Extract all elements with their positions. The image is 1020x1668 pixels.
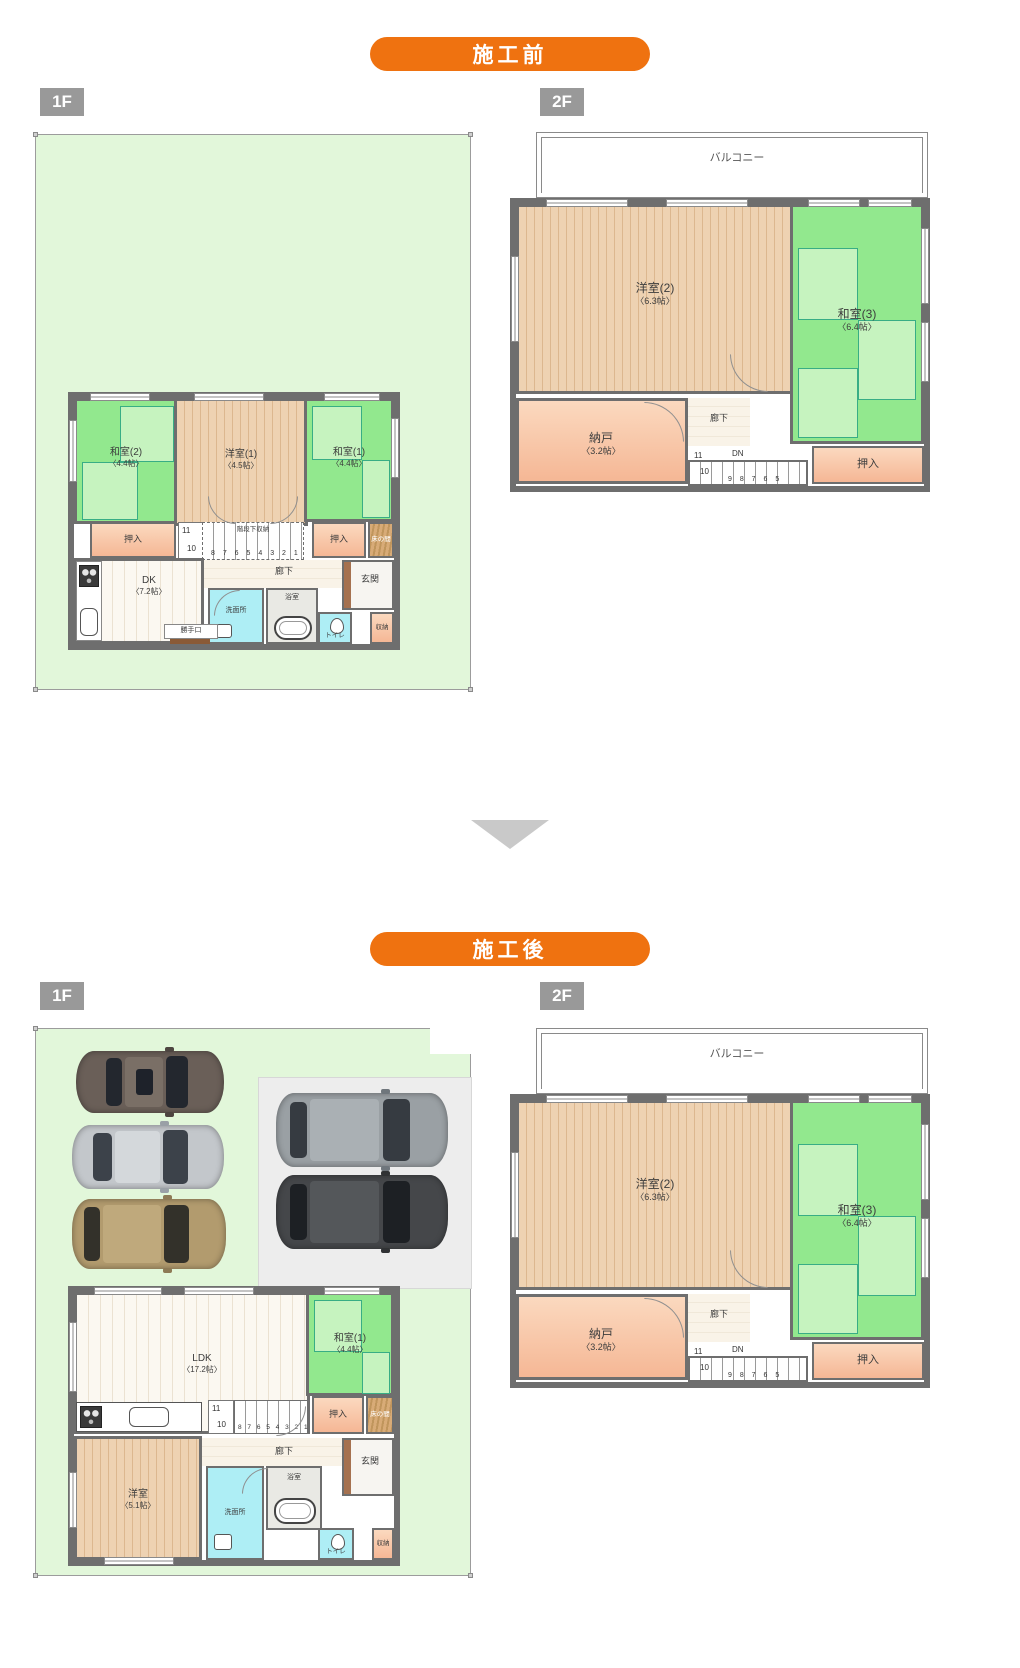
room-label: 玄関 — [346, 1452, 394, 1472]
window-symbol — [69, 420, 77, 482]
closet-label: 押入 — [312, 522, 366, 558]
room-label: 洋室(2) 〈6.3帖〉 — [612, 1170, 698, 1210]
window-symbol — [666, 1095, 748, 1103]
stair-numbers: 8 7 6 5 4 3 2 1 — [211, 550, 301, 557]
room-label: 和室(1) 〈4.4帖〉 — [318, 1326, 382, 1362]
transition-arrow-down — [471, 820, 549, 849]
stair-number: 11 — [212, 1405, 220, 1413]
room-label: トイレ — [318, 1546, 354, 1558]
window-symbol — [921, 1218, 929, 1278]
lot-corner-marker — [33, 1026, 38, 1031]
room-label: DK 〈7.2帖〉 — [114, 570, 184, 602]
window-symbol — [921, 228, 929, 304]
room-label: 洋室(1) 〈4.5帖〉 — [201, 442, 281, 478]
corridor-label: 廊下 — [264, 562, 304, 582]
stair-number: 11 — [694, 452, 702, 460]
stair-landing: 11 10 — [208, 1400, 234, 1434]
corridor-label: 廊下 — [264, 1442, 304, 1462]
after-section-badge: 施工後 — [370, 932, 650, 966]
stove-icon — [79, 565, 99, 587]
room-label: 浴室 — [266, 592, 318, 604]
car-suv-gray-top-icon — [276, 1093, 448, 1167]
bathtub-icon — [274, 616, 312, 640]
lot-corner-marker — [33, 687, 38, 692]
room-label: 和室(2) 〈4.4帖〉 — [86, 440, 166, 476]
room-label: 洋室 〈5.1帖〉 — [98, 1482, 178, 1518]
floor-1f-badge-after: 1F — [40, 982, 84, 1010]
tokonoma-label: 床の間 — [364, 1396, 396, 1434]
room-label: LDK 〈17.2帖〉 — [162, 1346, 242, 1382]
window-symbol — [104, 1557, 174, 1565]
room-label: 浴室 — [266, 1472, 322, 1484]
floor-2f-body: 洋室(2) 〈6.3帖〉 和室(3) 〈6.4帖〉 納戸 〈3.2帖〉 廊下 D… — [510, 1094, 930, 1388]
katteguchi-label: 勝手口 — [164, 624, 218, 639]
window-symbol — [511, 1152, 519, 1238]
stair-landing: 11 10 — [178, 522, 204, 560]
closet-label: 押入 — [812, 1342, 924, 1380]
stair-number: 10 — [700, 1364, 709, 1372]
washbasin-icon — [216, 624, 232, 638]
bathtub-icon — [274, 1498, 316, 1524]
window-symbol — [324, 1287, 380, 1295]
floorplan-1f-before: 和室(2) 〈4.4帖〉 洋室(1) 〈4.5帖〉 和室(1) 〈4.4帖〉 押… — [68, 392, 400, 650]
closet-label: 押入 — [312, 1396, 364, 1434]
stairs-under-closet: 階段下収納 8 7 6 5 4 3 2 1 — [202, 522, 304, 560]
room-label: 洗面所 — [206, 1506, 264, 1520]
room-label: 玄関 — [346, 570, 394, 590]
window-symbol — [808, 1095, 860, 1103]
room-label: 納戸 〈3.2帖〉 — [556, 424, 646, 464]
window-symbol — [391, 418, 399, 478]
window-symbol — [511, 256, 519, 342]
window-symbol — [69, 1322, 77, 1392]
floor-2f-badge-after: 2F — [540, 982, 584, 1010]
stair-numbers: 9 8 7 6 5 — [728, 476, 782, 483]
window-symbol — [921, 322, 929, 382]
balcony-label: バルコニー — [657, 151, 817, 167]
corridor-label: 廊下 — [696, 410, 742, 428]
lot-corner-marker — [468, 1573, 473, 1578]
lot-corner-marker — [468, 687, 473, 692]
floorplan-2f-after: バルコニー 洋室(2) 〈6.3帖〉 和室(3) 〈6.4帖〉 納戸 〈3.2帖… — [510, 1026, 930, 1388]
tokonoma-label: 床の間 — [366, 522, 396, 558]
lot-corner-marker — [33, 132, 38, 137]
car-suv-dark-top-icon — [276, 1175, 448, 1249]
closet-label: 収納 — [368, 612, 396, 644]
window-symbol — [194, 393, 264, 401]
window-symbol — [868, 199, 912, 207]
stair-number: 11 — [694, 1348, 702, 1356]
window-symbol — [94, 1287, 162, 1295]
window-symbol — [184, 1287, 254, 1295]
floor-1f-badge-before: 1F — [40, 88, 84, 116]
closet-label: 収納 — [368, 1528, 398, 1560]
stair-number: 10 — [187, 545, 196, 553]
kitchen-sink-icon — [80, 608, 98, 636]
corridor-label: 廊下 — [696, 1306, 742, 1324]
window-symbol — [69, 1472, 77, 1528]
window-symbol — [868, 1095, 912, 1103]
floorplan-1f-after: LDK 〈17.2帖〉 和室(1) 〈4.4帖〉 11 10 8 7 6 5 4… — [68, 1286, 400, 1566]
lot-notch — [430, 1028, 472, 1054]
stair-number: 10 — [700, 468, 709, 476]
window-symbol — [808, 199, 860, 207]
balcony: バルコニー — [536, 1028, 928, 1094]
stair-number: 10 — [217, 1421, 226, 1429]
balcony: バルコニー — [536, 132, 928, 198]
stair-closet-label: 階段下収納 — [203, 525, 303, 535]
washbasin-icon — [214, 1534, 232, 1550]
stairs-dn-label: DN — [732, 450, 744, 458]
stairs-dn-label: DN — [732, 1346, 744, 1354]
window-symbol — [921, 1124, 929, 1200]
kitchen-counter — [76, 561, 102, 641]
closet-label: 押入 — [812, 446, 924, 484]
stair-numbers: 9 8 7 6 5 — [728, 1372, 782, 1379]
floorplan-2f-before: バルコニー 洋室(2) 〈6.3帖〉 和室(3) 〈6.4帖〉 納戸 〈3.2帖… — [510, 130, 930, 492]
lot-corner-marker — [33, 1573, 38, 1578]
closet-label: 押入 — [90, 522, 176, 558]
floor-2f-body: 洋室(2) 〈6.3帖〉 和室(3) 〈6.4帖〉 納戸 〈3.2帖〉 廊下 D… — [510, 198, 930, 492]
before-after-floorplan-page: 施工前 1F 2F 和室(2) 〈4.4帖〉 洋室(1) 〈4.5帖〉 和室(1… — [0, 0, 1020, 1668]
room-label: 和室(3) 〈6.4帖〉 — [812, 1196, 902, 1236]
stove-icon — [80, 1406, 102, 1428]
before-section-badge: 施工前 — [370, 37, 650, 71]
car-sedan-graphite-top-icon — [76, 1051, 224, 1113]
room-label: トイレ — [318, 630, 352, 642]
floor-2f-badge-before: 2F — [540, 88, 584, 116]
window-symbol — [546, 1095, 628, 1103]
window-symbol — [546, 199, 628, 207]
room-label: 和室(3) 〈6.4帖〉 — [812, 300, 902, 340]
window-symbol — [90, 393, 150, 401]
stair-number: 11 — [182, 527, 190, 535]
lot-corner-marker — [468, 132, 473, 137]
car-hatchback-silver-top-icon — [72, 1125, 224, 1189]
window-symbol — [324, 393, 380, 401]
room-label: 納戸 〈3.2帖〉 — [556, 1320, 646, 1360]
room-label: 和室(1) 〈4.4帖〉 — [319, 440, 379, 476]
balcony-label: バルコニー — [657, 1047, 817, 1063]
kitchen-sink-icon — [129, 1407, 169, 1427]
room-label: 洋室(2) 〈6.3帖〉 — [612, 274, 698, 314]
car-suv-beige-top-icon — [72, 1199, 226, 1269]
window-symbol — [666, 199, 748, 207]
kitchen-counter — [76, 1402, 202, 1432]
